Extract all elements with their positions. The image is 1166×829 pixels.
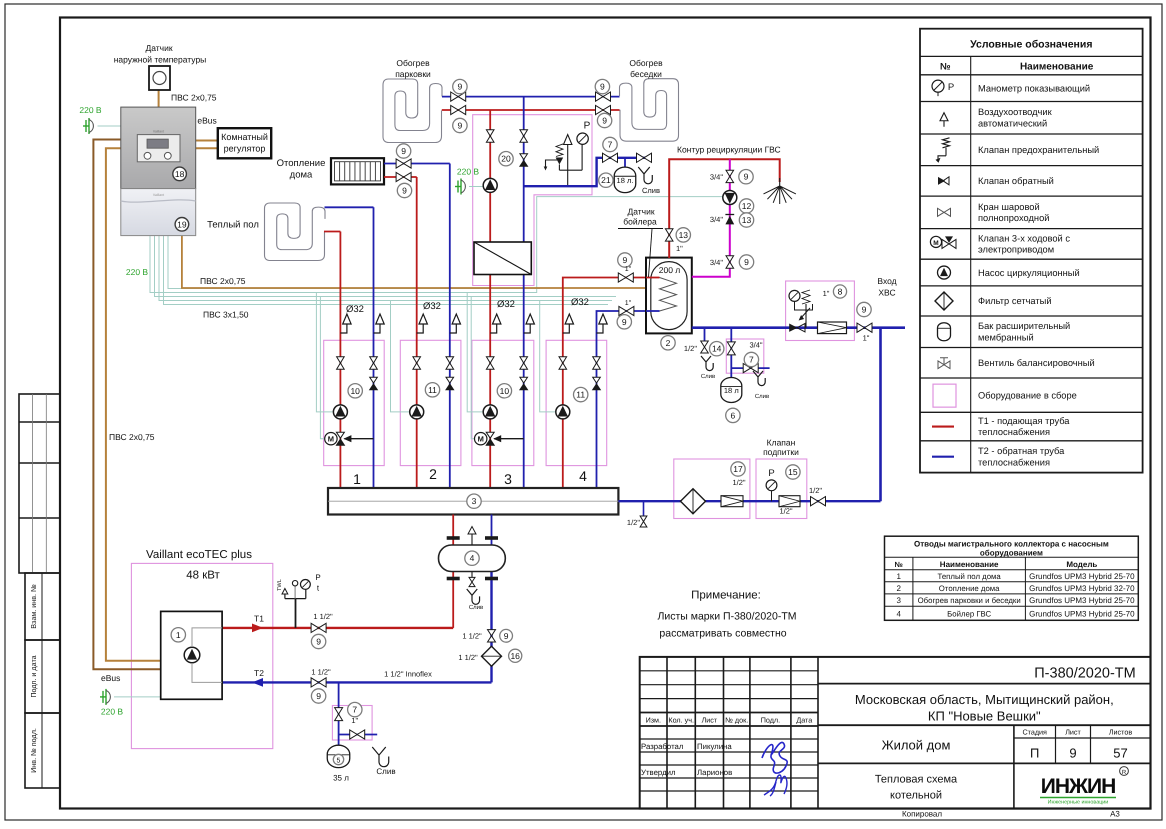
svg-text:Слив: Слив: [701, 373, 715, 380]
svg-text:18 л.: 18 л.: [617, 176, 634, 185]
svg-text:Примечание:: Примечание:: [691, 590, 761, 602]
svg-text:1 1/2" Innoflex: 1 1/2" Innoflex: [384, 670, 432, 679]
svg-text:Тепловая схема: Тепловая схема: [875, 774, 958, 786]
svg-text:Воздухоотводчик: Воздухоотводчик: [978, 107, 1053, 117]
svg-text:Теплый пол: Теплый пол: [207, 220, 259, 231]
svg-text:А3: А3: [1110, 810, 1120, 819]
svg-text:9: 9: [744, 172, 749, 182]
svg-text:10: 10: [350, 386, 360, 396]
svg-text:Жилой дом: Жилой дом: [882, 738, 951, 753]
svg-text:Кран шаровой: Кран шаровой: [978, 202, 1040, 212]
svg-text:R: R: [1122, 769, 1127, 776]
svg-text:1/2": 1/2": [684, 344, 697, 353]
svg-text:9: 9: [622, 317, 627, 327]
svg-text:№: №: [940, 62, 951, 73]
svg-text:Ø32: Ø32: [571, 297, 589, 308]
svg-text:Обогрев парковки и беседки: Обогрев парковки и беседки: [918, 596, 1021, 605]
svg-text:наружной температуры: наружной температуры: [114, 55, 207, 65]
svg-text:1/2": 1/2": [732, 478, 745, 487]
svg-text:20: 20: [501, 154, 511, 164]
svg-text:1": 1": [823, 289, 830, 298]
svg-text:Слив: Слив: [755, 393, 769, 400]
svg-text:Бойлер ГВС: Бойлер ГВС: [947, 609, 991, 618]
svg-text:Инженерные инновации: Инженерные инновации: [1048, 800, 1109, 806]
svg-text:10: 10: [500, 386, 510, 396]
svg-text:11: 11: [576, 390, 585, 400]
svg-text:Клапан предохранительный: Клапан предохранительный: [978, 145, 1099, 155]
svg-text:1 1/2": 1 1/2": [313, 612, 333, 621]
svg-text:P: P: [315, 573, 320, 582]
svg-text:3/4": 3/4": [749, 341, 762, 350]
svg-text:48 кВт: 48 кВт: [186, 570, 220, 582]
svg-text:Пикулина: Пикулина: [697, 742, 732, 751]
svg-text:Т2: Т2: [254, 668, 264, 678]
svg-text:1: 1: [896, 572, 901, 581]
svg-text:ИНЖИН: ИНЖИН: [1041, 775, 1116, 798]
svg-text:57: 57: [1113, 746, 1127, 761]
svg-text:3/4": 3/4": [710, 173, 723, 182]
svg-text:1: 1: [176, 630, 181, 640]
svg-text:М: М: [328, 435, 334, 444]
svg-text:1/2": 1/2": [779, 507, 792, 516]
svg-text:П-380/2020-ТМ: П-380/2020-ТМ: [1034, 666, 1136, 682]
svg-text:ПВС 2x0,75: ПВС 2x0,75: [200, 276, 246, 286]
svg-text:Т1 - подающая труба: Т1 - подающая труба: [978, 416, 1070, 426]
svg-text:21: 21: [601, 175, 611, 185]
svg-text:Вентиль балансировочный: Вентиль балансировочный: [978, 358, 1095, 368]
svg-text:Grundfos UPM3 Hybrid 25-70: Grundfos UPM3 Hybrid 25-70: [1029, 596, 1135, 605]
svg-text:9: 9: [316, 691, 321, 701]
svg-text:Взам. инв. №: Взам. инв. №: [29, 584, 38, 629]
svg-text:1": 1": [863, 334, 870, 343]
svg-text:1": 1": [351, 716, 358, 725]
svg-text:Grundfos UPM3 Hybrid 32-70: Grundfos UPM3 Hybrid 32-70: [1029, 584, 1135, 593]
svg-text:9: 9: [401, 146, 406, 156]
svg-text:9: 9: [504, 631, 509, 641]
svg-text:Клапан обратный: Клапан обратный: [978, 176, 1054, 186]
svg-text:19: 19: [177, 219, 187, 229]
svg-text:1": 1": [676, 244, 683, 253]
svg-text:Копировал: Копировал: [902, 810, 942, 819]
svg-text:Клапан 3-х ходовой с: Клапан 3-х ходовой с: [978, 233, 1070, 243]
svg-text:Датчик: Датчик: [145, 43, 172, 53]
svg-text:220 В: 220 В: [126, 267, 149, 277]
svg-text:9: 9: [402, 186, 407, 196]
svg-text:№: №: [895, 560, 903, 569]
svg-text:Условные обозначения: Условные обозначения: [970, 39, 1092, 51]
svg-text:9: 9: [623, 255, 628, 265]
svg-text:Вход: Вход: [877, 276, 896, 286]
svg-text:ПВС 2x0,75: ПВС 2x0,75: [109, 432, 155, 442]
svg-text:Клапан: Клапан: [767, 438, 796, 448]
svg-text:М: М: [933, 240, 938, 247]
svg-text:автоматический: автоматический: [978, 118, 1047, 128]
svg-text:9: 9: [458, 121, 463, 131]
svg-text:4: 4: [470, 553, 475, 563]
svg-text:рассматривать совместно: рассматривать совместно: [659, 628, 786, 640]
svg-text:Манометр показывающий: Манометр показывающий: [978, 83, 1090, 93]
svg-text:2: 2: [896, 584, 901, 593]
svg-text:мембранный: мембранный: [978, 332, 1034, 342]
svg-text:Листы марки П-380/2020-ТМ: Листы марки П-380/2020-ТМ: [657, 611, 796, 623]
svg-text:11: 11: [428, 385, 437, 395]
svg-text:220 В: 220 В: [457, 167, 480, 177]
svg-text:Листов: Листов: [1109, 728, 1133, 737]
svg-text:электроприводом: электроприводом: [978, 245, 1054, 255]
svg-text:15: 15: [788, 467, 798, 477]
svg-text:Vaillant: Vaillant: [153, 193, 164, 197]
svg-text:3/4": 3/4": [710, 215, 723, 224]
svg-text:2: 2: [429, 466, 437, 482]
svg-text:Московская область, Мытищински: Московская область, Мытищинский район,: [855, 692, 1114, 707]
svg-text:9: 9: [600, 82, 605, 92]
svg-text:Модель: Модель: [1066, 560, 1097, 569]
svg-text:1 1/2": 1 1/2": [311, 668, 331, 677]
svg-text:дома: дома: [290, 170, 313, 181]
svg-text:1 1/2": 1 1/2": [458, 653, 478, 662]
svg-text:ХВС: ХВС: [878, 288, 895, 298]
svg-text:бойлера: бойлера: [623, 217, 657, 227]
svg-text:Лист: Лист: [1065, 728, 1081, 737]
svg-text:М: М: [478, 435, 484, 444]
svg-text:Комнатный: Комнатный: [221, 132, 268, 142]
svg-text:9: 9: [862, 305, 867, 315]
svg-text:беседки: беседки: [630, 69, 662, 79]
svg-text:9: 9: [316, 637, 321, 647]
svg-text:3: 3: [504, 471, 512, 487]
svg-text:P: P: [584, 121, 591, 132]
svg-text:4: 4: [579, 468, 587, 484]
svg-text:P: P: [768, 468, 774, 479]
svg-text:9: 9: [602, 116, 607, 126]
svg-text:Отопление дома: Отопление дома: [939, 584, 1000, 593]
svg-text:подпитки: подпитки: [763, 447, 799, 457]
svg-text:12: 12: [742, 201, 752, 211]
svg-text:14: 14: [712, 344, 722, 354]
svg-text:TWL: TWL: [277, 579, 283, 591]
svg-text:Фильтр сетчатый: Фильтр сетчатый: [978, 296, 1052, 306]
svg-text:Vaillant ecoTEC plus: Vaillant ecoTEC plus: [146, 549, 252, 561]
svg-text:3: 3: [472, 496, 477, 506]
svg-text:8: 8: [838, 287, 843, 297]
svg-text:Контур рециркуляции ГВС: Контур рециркуляции ГВС: [677, 145, 781, 155]
svg-text:200 л: 200 л: [659, 265, 681, 275]
svg-text:теплоснабжения: теплоснабжения: [978, 457, 1050, 467]
svg-text:4: 4: [896, 609, 901, 618]
svg-text:9: 9: [744, 257, 749, 267]
svg-text:9: 9: [458, 82, 463, 92]
svg-text:Grundfos UPM3 Hybrid 25-70: Grundfos UPM3 Hybrid 25-70: [1029, 572, 1135, 581]
svg-text:16: 16: [510, 651, 520, 661]
svg-text:Оборудование в сборе: Оборудование в сборе: [978, 390, 1077, 400]
svg-text:Утвердил: Утвердил: [641, 768, 676, 777]
svg-text:полнопроходной: полнопроходной: [978, 213, 1049, 223]
svg-text:Ø32: Ø32: [423, 301, 441, 312]
svg-text:18: 18: [175, 169, 185, 179]
svg-text:Слив: Слив: [642, 186, 660, 195]
svg-text:парковки: парковки: [395, 69, 431, 79]
svg-text:eBus: eBus: [197, 116, 216, 126]
svg-text:1/2": 1/2": [809, 486, 822, 495]
svg-text:13: 13: [679, 230, 689, 240]
svg-text:7: 7: [608, 140, 613, 150]
svg-text:Т2 - обратная труба: Т2 - обратная труба: [978, 446, 1065, 456]
svg-text:6: 6: [731, 410, 736, 420]
svg-text:Насос циркуляционный: Насос циркуляционный: [978, 268, 1080, 278]
svg-text:Vaillant: Vaillant: [153, 130, 164, 134]
svg-text:котельной: котельной: [890, 790, 942, 802]
svg-text:Подл.: Подл.: [761, 716, 780, 725]
svg-text:35 л: 35 л: [333, 774, 349, 783]
svg-text:Ø32: Ø32: [346, 304, 364, 315]
svg-text:13: 13: [742, 215, 752, 225]
svg-text:Наименование: Наименование: [1020, 62, 1094, 73]
svg-text:Наименование: Наименование: [940, 560, 999, 569]
svg-text:Подп. и дата: Подп. и дата: [29, 655, 38, 697]
svg-text:18 л: 18 л: [724, 386, 739, 395]
svg-text:Grundfos UPM3 Hybrid 25-70: Grundfos UPM3 Hybrid 25-70: [1029, 609, 1135, 618]
svg-text:1/2": 1/2": [627, 518, 640, 527]
svg-text:П: П: [1030, 746, 1039, 761]
svg-text:17: 17: [733, 464, 743, 474]
svg-text:ПВС 3x1,50: ПВС 3x1,50: [203, 310, 249, 320]
svg-text:Бак расширительный: Бак расширительный: [978, 321, 1070, 331]
svg-text:Разработал: Разработал: [641, 742, 684, 751]
svg-text:9: 9: [1069, 746, 1076, 761]
svg-text:оборудованием: оборудованием: [980, 549, 1043, 558]
svg-text:теплоснабжения: теплоснабжения: [978, 427, 1050, 437]
svg-text:5: 5: [337, 758, 341, 765]
svg-text:Кол. уч.: Кол. уч.: [668, 716, 694, 725]
svg-text:Ларионов: Ларионов: [697, 768, 732, 777]
svg-text:№ док.: № док.: [725, 716, 748, 725]
svg-text:Обогрев: Обогрев: [396, 58, 430, 68]
svg-text:Лист: Лист: [702, 716, 718, 725]
svg-text:eBus: eBus: [101, 673, 120, 683]
svg-text:Стадия: Стадия: [1022, 728, 1047, 737]
svg-text:ПВС 2x0,75: ПВС 2x0,75: [171, 93, 217, 103]
svg-text:Слив: Слив: [376, 767, 395, 776]
svg-text:Инв. № подл.: Инв. № подл.: [29, 728, 38, 773]
svg-text:Р: Р: [948, 82, 954, 93]
svg-text:220 В: 220 В: [101, 707, 124, 717]
svg-text:КП "Новые Вешки": КП "Новые Вешки": [928, 709, 1041, 724]
svg-text:Датчик: Датчик: [627, 207, 654, 217]
svg-text:1 1/2": 1 1/2": [462, 632, 482, 641]
svg-text:7: 7: [749, 355, 754, 365]
svg-text:Дата: Дата: [796, 716, 812, 725]
svg-text:Ø32: Ø32: [497, 299, 515, 310]
svg-text:Теплый пол дома: Теплый пол дома: [938, 572, 1002, 581]
svg-text:220 В: 220 В: [79, 105, 102, 115]
svg-text:Обогрев: Обогрев: [629, 58, 663, 68]
svg-text:1": 1": [625, 266, 632, 273]
svg-text:1": 1": [625, 300, 632, 307]
svg-text:Изм.: Изм.: [646, 716, 661, 725]
svg-text:Отопление: Отопление: [277, 158, 326, 169]
svg-text:7: 7: [352, 705, 357, 715]
svg-text:Т1: Т1: [254, 614, 264, 624]
svg-text:Отводы магистрального коллекто: Отводы магистрального коллектора с насос…: [914, 540, 1109, 549]
svg-text:регулятор: регулятор: [224, 144, 266, 154]
svg-text:3: 3: [896, 596, 901, 605]
svg-text:Слив: Слив: [469, 604, 483, 611]
svg-text:3/4": 3/4": [710, 258, 723, 267]
svg-text:1: 1: [353, 471, 361, 487]
svg-text:2: 2: [666, 338, 671, 348]
